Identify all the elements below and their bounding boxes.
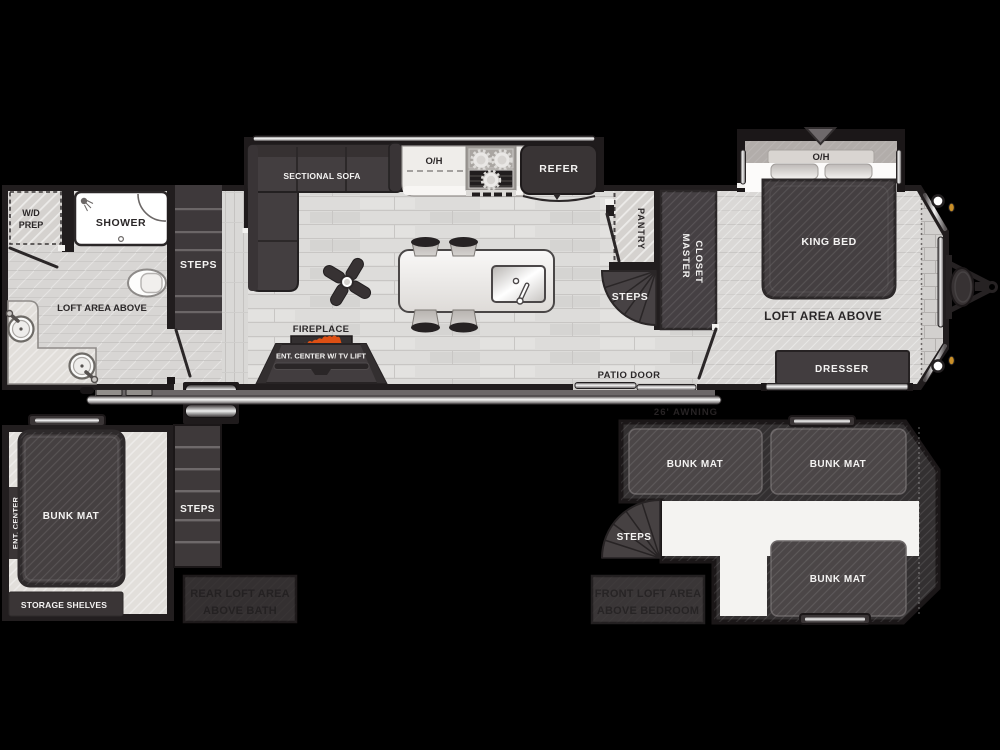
svg-text:STEPS: STEPS	[180, 504, 215, 515]
svg-text:STORAGE SHELVES: STORAGE SHELVES	[21, 600, 107, 610]
svg-text:LOFT AREA ABOVE: LOFT AREA ABOVE	[764, 309, 882, 323]
svg-text:BUNK MAT: BUNK MAT	[43, 511, 100, 522]
svg-text:MASTER: MASTER	[680, 234, 691, 279]
svg-text:26' AWNING: 26' AWNING	[654, 407, 718, 418]
svg-text:PATIO DOOR: PATIO DOOR	[598, 370, 661, 381]
svg-text:ABOVE BATH: ABOVE BATH	[203, 605, 277, 617]
svg-text:PANTRY: PANTRY	[636, 208, 646, 250]
svg-text:BUNK MAT: BUNK MAT	[810, 459, 867, 470]
svg-text:FIREPLACE: FIREPLACE	[293, 324, 350, 335]
svg-text:SECTIONAL SOFA: SECTIONAL SOFA	[283, 171, 360, 181]
svg-text:ABOVE BEDROOM: ABOVE BEDROOM	[597, 605, 699, 617]
svg-text:SHOWER: SHOWER	[96, 217, 146, 229]
svg-text:STEPS: STEPS	[180, 259, 217, 271]
svg-text:STEPS: STEPS	[612, 291, 648, 303]
svg-text:REFER: REFER	[539, 163, 579, 175]
svg-text:KING BED: KING BED	[801, 236, 856, 248]
svg-text:PREP: PREP	[19, 220, 44, 230]
svg-text:STEPS: STEPS	[617, 532, 652, 543]
svg-text:LOFT AREA ABOVE: LOFT AREA ABOVE	[57, 303, 147, 314]
svg-text:ENT. CENTER W/ TV LIFT: ENT. CENTER W/ TV LIFT	[276, 352, 366, 361]
svg-text:BUNK MAT: BUNK MAT	[667, 459, 724, 470]
svg-text:BUNK MAT: BUNK MAT	[810, 574, 867, 585]
svg-text:O/H: O/H	[813, 152, 830, 163]
svg-text:DRESSER: DRESSER	[815, 364, 869, 375]
svg-text:W/D: W/D	[22, 208, 40, 218]
svg-text:REAR LOFT AREA: REAR LOFT AREA	[190, 588, 290, 600]
svg-text:CLOSET: CLOSET	[693, 240, 704, 283]
svg-text:FRONT LOFT AREA: FRONT LOFT AREA	[595, 588, 701, 600]
svg-text:O/H: O/H	[426, 156, 443, 167]
